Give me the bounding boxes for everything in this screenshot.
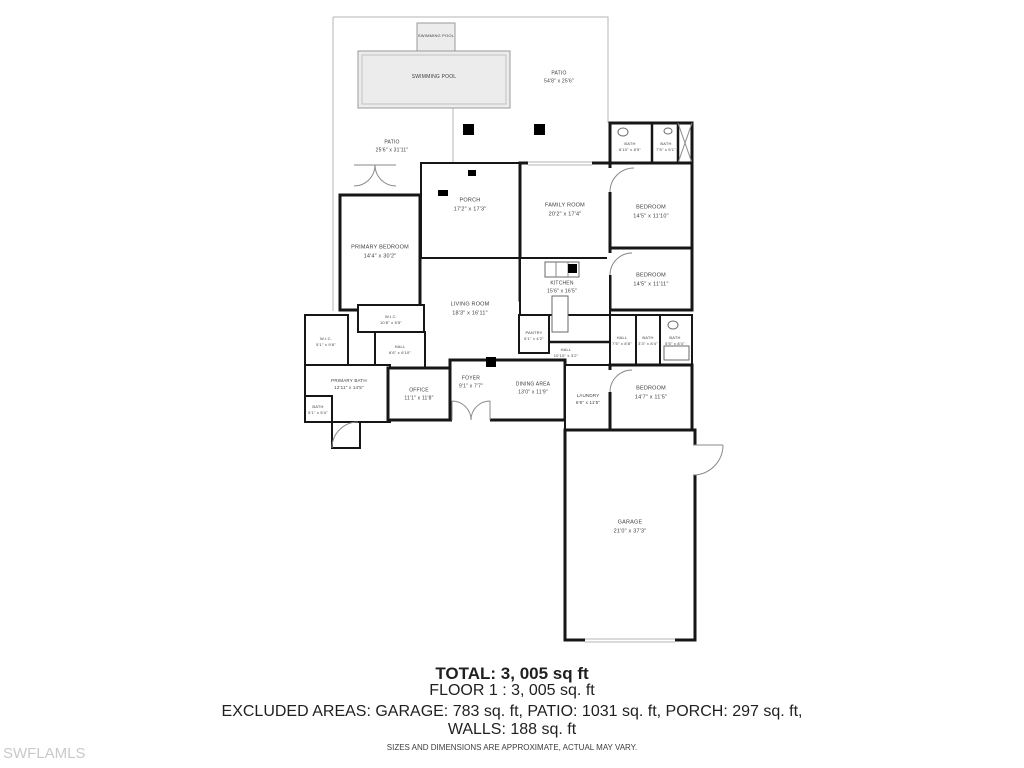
room-label: FOYER9'1" x 7'7": [459, 375, 483, 391]
room-label: FAMILY ROOM20'2" x 17'4": [545, 201, 585, 218]
room-label: BEDROOM14'5" x 11'10": [633, 203, 669, 220]
room-label: BATH5'5" x 8'4": [665, 335, 685, 347]
room-label: BATH6'10" x 8'5": [619, 141, 641, 153]
floor-plan-page: SWIMMING POOLSWIMMING POOLPATIO54'8" x 2…: [0, 0, 1024, 768]
room-label: HALL6'6" x 6'10": [389, 344, 411, 356]
room-label: HALL7'5" x 8'8": [612, 335, 632, 347]
room-label: BATH5'1" x 5'4": [308, 404, 328, 416]
watermark: SWFLAMLS: [3, 745, 86, 762]
room-label: PRIMARY BATH12'11" x 14'5": [331, 378, 367, 392]
room-label: SWIMMING POOL: [418, 33, 454, 39]
room-label: PATIO54'8" x 25'6": [544, 70, 574, 86]
room-label: BEDROOM14'5" x 11'11": [633, 271, 668, 288]
room-label: LAUNDRY6'6" x 11'5": [576, 393, 600, 407]
room-label: W.I.C.10'8" x 5'5": [380, 314, 402, 326]
room-label: LIVING ROOM18'3" x 16'11": [451, 300, 490, 317]
room-label: BATH3'3" x 8'4": [638, 335, 658, 347]
room-label: BATH7'5" x 5'1": [656, 141, 676, 153]
room-label: BEDROOM14'7" x 11'5": [635, 384, 667, 401]
room-label: PATIO25'6" x 31'11": [376, 139, 409, 155]
room-labels: SWIMMING POOLSWIMMING POOLPATIO54'8" x 2…: [0, 0, 1024, 768]
room-label: GARAGE21'0" x 37'3": [614, 518, 647, 535]
room-label: SWIMMING POOL: [412, 74, 457, 82]
room-label: PANTRY5'1" x 4'2": [524, 330, 544, 342]
room-label: PORCH17'2" x 17'3": [454, 196, 487, 213]
room-label: HALL10'10" x 3'2": [554, 347, 579, 359]
room-label: DINING AREA13'0" x 11'9": [516, 381, 550, 397]
room-label: KITCHEN15'6" x 16'5": [547, 280, 577, 296]
room-label: OFFICE11'1" x 11'8": [404, 387, 433, 403]
room-label: W.I.C.5'1" x 9'8": [316, 336, 336, 348]
room-label: PRIMARY BEDROOM14'4" x 30'2": [351, 243, 409, 260]
